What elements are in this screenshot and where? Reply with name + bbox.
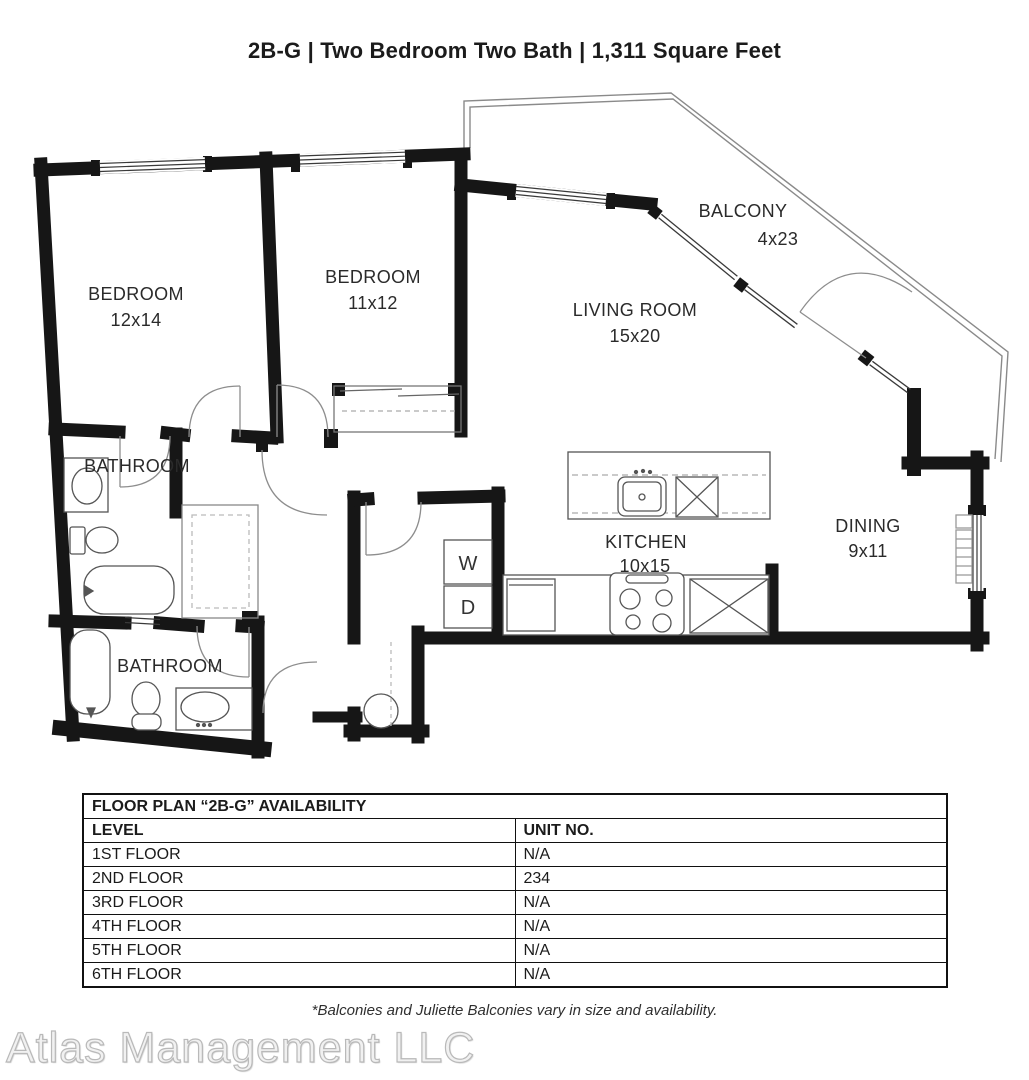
level-cell: 4TH FLOOR bbox=[83, 915, 515, 939]
kitchen-label: KITCHEN bbox=[605, 532, 687, 552]
balcony-outline bbox=[464, 93, 1008, 462]
dining-dims: 9x11 bbox=[848, 541, 887, 561]
unit-cell: N/A bbox=[515, 891, 947, 915]
unit-cell: 234 bbox=[515, 867, 947, 891]
living-room-label: LIVING ROOM bbox=[573, 300, 697, 320]
burner bbox=[626, 615, 640, 629]
table-row: 6TH FLOOR N/A bbox=[83, 963, 947, 988]
col-unit: UNIT NO. bbox=[515, 819, 947, 843]
level-cell: 3RD FLOOR bbox=[83, 891, 515, 915]
burner bbox=[620, 589, 640, 609]
availability-header-row: LEVEL UNIT NO. bbox=[83, 819, 947, 843]
bathroom2-label: BATHROOM bbox=[117, 656, 223, 676]
living-room-dims: 15x20 bbox=[609, 326, 660, 346]
bath2-toilet-base bbox=[132, 714, 161, 730]
balcony-dims: 4x23 bbox=[758, 229, 799, 249]
watermark: Atlas Management LLC bbox=[6, 1024, 475, 1073]
level-cell: 5TH FLOOR bbox=[83, 939, 515, 963]
bedroom2-dims: 11x12 bbox=[348, 293, 398, 313]
bed1-closet bbox=[182, 505, 258, 618]
dryer-label: D bbox=[461, 597, 475, 619]
bath1-tub bbox=[84, 566, 174, 614]
bedroom1-label: BEDROOM bbox=[88, 284, 184, 304]
bath1-toilet-tank bbox=[70, 527, 85, 554]
availability-title: FLOOR PLAN “2B-G” AVAILABILITY bbox=[83, 794, 947, 819]
table-row: 1ST FLOOR N/A bbox=[83, 843, 947, 867]
bath2-tub bbox=[70, 630, 110, 714]
bed2-closet bbox=[334, 386, 461, 432]
burner bbox=[653, 614, 671, 632]
kitchen-island bbox=[568, 452, 770, 519]
table-row: 4TH FLOOR N/A bbox=[83, 915, 947, 939]
door-arcs bbox=[120, 273, 912, 713]
table-row: 5TH FLOOR N/A bbox=[83, 939, 947, 963]
floorplan-page: 2B-G | Two Bedroom Two Bath | 1,311 Squa… bbox=[0, 0, 1029, 1080]
level-cell: 2ND FLOOR bbox=[83, 867, 515, 891]
unit-cell: N/A bbox=[515, 963, 947, 988]
bath2-toilet-bowl bbox=[132, 682, 160, 716]
balcony-label: BALCONY bbox=[699, 201, 788, 221]
bathroom1-label: BATHROOM bbox=[84, 456, 190, 476]
bath1-toilet-bowl bbox=[86, 527, 118, 553]
balcony-footnote: *Balconies and Juliette Balconies vary i… bbox=[0, 1002, 1029, 1019]
washer-label: W bbox=[459, 553, 478, 575]
fridge bbox=[507, 579, 555, 631]
unit-cell: N/A bbox=[515, 843, 947, 867]
unit-cell: N/A bbox=[515, 939, 947, 963]
col-level: LEVEL bbox=[83, 819, 515, 843]
radiator bbox=[956, 515, 972, 528]
dining-label: DINING bbox=[835, 516, 900, 536]
table-row: 2ND FLOOR 234 bbox=[83, 867, 947, 891]
burner bbox=[656, 590, 672, 606]
fixtures bbox=[64, 386, 972, 730]
availability-title-row: FLOOR PLAN “2B-G” AVAILABILITY bbox=[83, 794, 947, 819]
table-row: 3RD FLOOR N/A bbox=[83, 891, 947, 915]
bath2-sink bbox=[181, 692, 229, 722]
water-heater bbox=[364, 694, 398, 728]
level-cell: 6TH FLOOR bbox=[83, 963, 515, 988]
bedroom2-label: BEDROOM bbox=[325, 267, 421, 287]
level-cell: 1ST FLOOR bbox=[83, 843, 515, 867]
unit-cell: N/A bbox=[515, 915, 947, 939]
availability-table: FLOOR PLAN “2B-G” AVAILABILITY LEVEL UNI… bbox=[82, 793, 948, 988]
kitchen-dims: 10x15 bbox=[619, 556, 670, 576]
bedroom1-dims: 12x14 bbox=[110, 310, 161, 330]
